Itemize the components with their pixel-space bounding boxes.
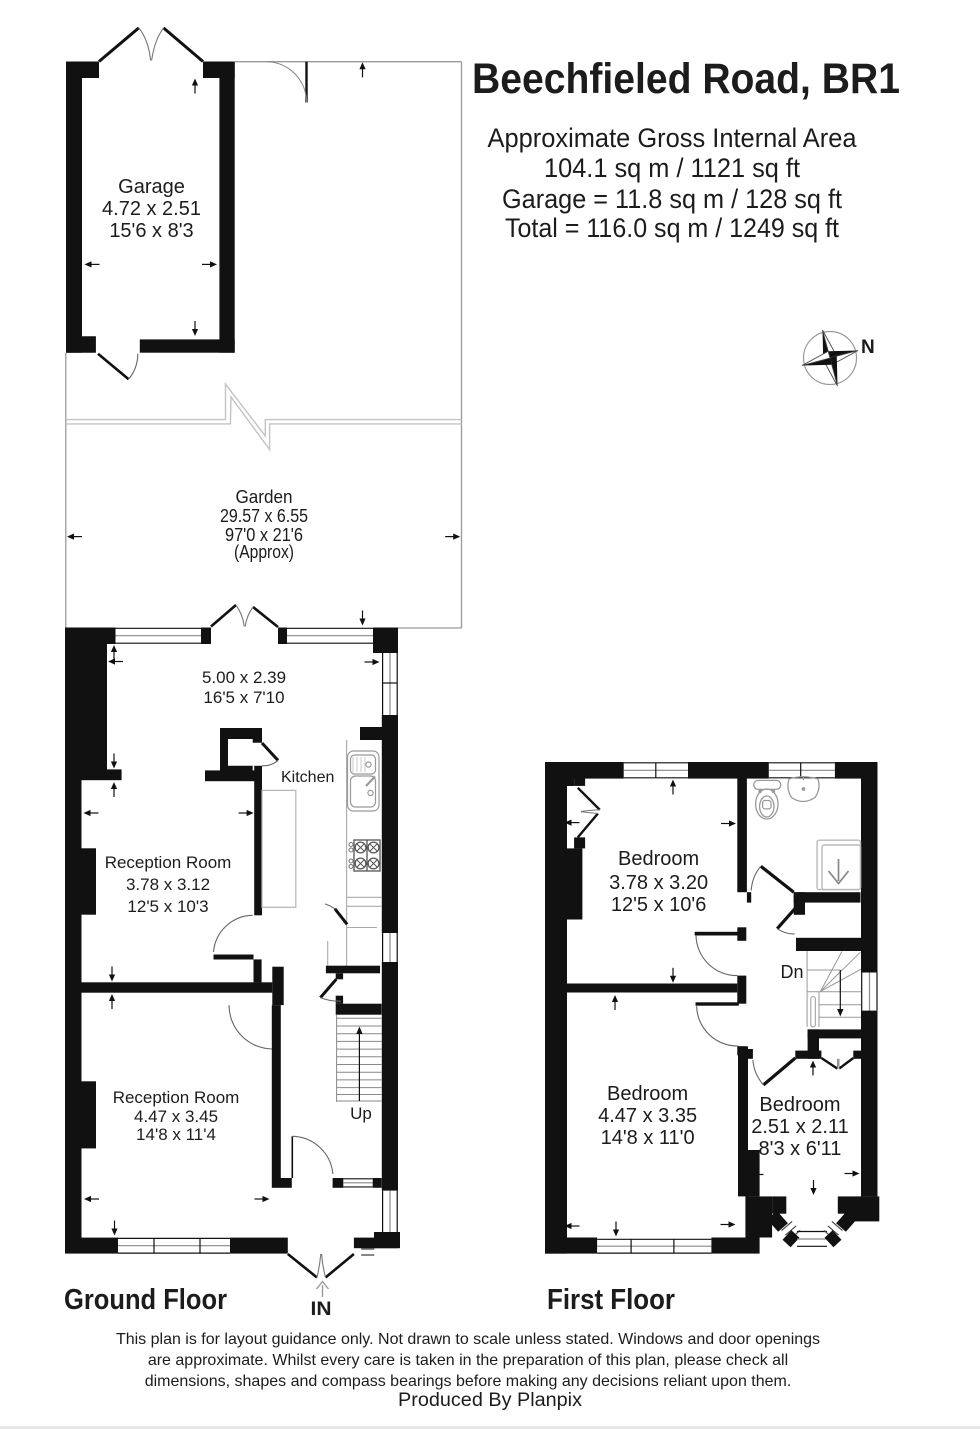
svg-text:are approximate. Whilst every: are approximate. Whilst every care is ta…: [148, 1352, 788, 1369]
svg-text:Bedroom: Bedroom: [759, 1094, 840, 1116]
svg-text:16'5 x 7'10: 16'5 x 7'10: [203, 688, 284, 707]
svg-text:3.78 x 3.12: 3.78 x 3.12: [126, 875, 210, 894]
svg-text:3.78 x 3.20: 3.78 x 3.20: [609, 872, 708, 894]
svg-text:IN: IN: [311, 1299, 332, 1320]
svg-text:Reception Room: Reception Room: [105, 853, 232, 872]
svg-text:Bedroom: Bedroom: [618, 848, 699, 870]
svg-text:Garage = 11.8 sq m / 128 sq ft: Garage = 11.8 sq m / 128 sq ft: [502, 184, 842, 214]
svg-text:Approximate Gross Internal Are: Approximate Gross Internal Area: [488, 123, 858, 153]
svg-text:dimensions, shapes and compass: dimensions, shapes and compass bearings …: [145, 1373, 792, 1390]
svg-text:Beechfieled Road, BR1: Beechfieled Road, BR1: [472, 55, 900, 103]
svg-text:2.51 x 2.11: 2.51 x 2.11: [751, 1116, 848, 1138]
svg-text:15'6 x 8'3: 15'6 x 8'3: [109, 220, 193, 242]
svg-text:N: N: [861, 337, 875, 358]
svg-text:14'8 x 11'4: 14'8 x 11'4: [136, 1125, 216, 1144]
svg-text:Garden: Garden: [236, 487, 293, 507]
svg-text:104.1 sq m / 1121 sq ft: 104.1 sq m / 1121 sq ft: [544, 153, 800, 183]
svg-text:5.00 x 2.39: 5.00 x 2.39: [202, 668, 286, 687]
svg-text:4.47 x 3.45: 4.47 x 3.45: [134, 1107, 218, 1126]
svg-text:12'5 x 10'6: 12'5 x 10'6: [611, 894, 707, 916]
svg-text:Dn: Dn: [780, 962, 803, 982]
svg-text:Reception Room: Reception Room: [113, 1088, 240, 1107]
svg-text:Total = 116.0 sq m / 1249 sq f: Total = 116.0 sq m / 1249 sq ft: [505, 213, 839, 243]
svg-text:4.72 x 2.51: 4.72 x 2.51: [102, 198, 201, 220]
svg-text:4.47 x 3.35: 4.47 x 3.35: [598, 1105, 697, 1127]
svg-text:14'8 x 11'0: 14'8 x 11'0: [601, 1127, 695, 1149]
svg-text:Garage: Garage: [118, 176, 185, 198]
svg-text:Ground Floor: Ground Floor: [64, 1284, 227, 1316]
svg-text:12'5 x 10'3: 12'5 x 10'3: [127, 897, 208, 916]
svg-text:29.57 x 6.55: 29.57 x 6.55: [220, 506, 308, 526]
svg-text:8'3 x 6'11: 8'3 x 6'11: [759, 1138, 842, 1160]
svg-text:Kitchen: Kitchen: [281, 769, 334, 786]
svg-text:First Floor: First Floor: [547, 1284, 675, 1316]
svg-text:(Approx): (Approx): [234, 542, 294, 562]
svg-text:Up: Up: [350, 1104, 372, 1123]
svg-text:Bedroom: Bedroom: [607, 1083, 688, 1105]
svg-text:This plan is for layout guidan: This plan is for layout guidance only. N…: [116, 1331, 820, 1348]
svg-text:Produced By Planpix: Produced By Planpix: [398, 1390, 583, 1411]
